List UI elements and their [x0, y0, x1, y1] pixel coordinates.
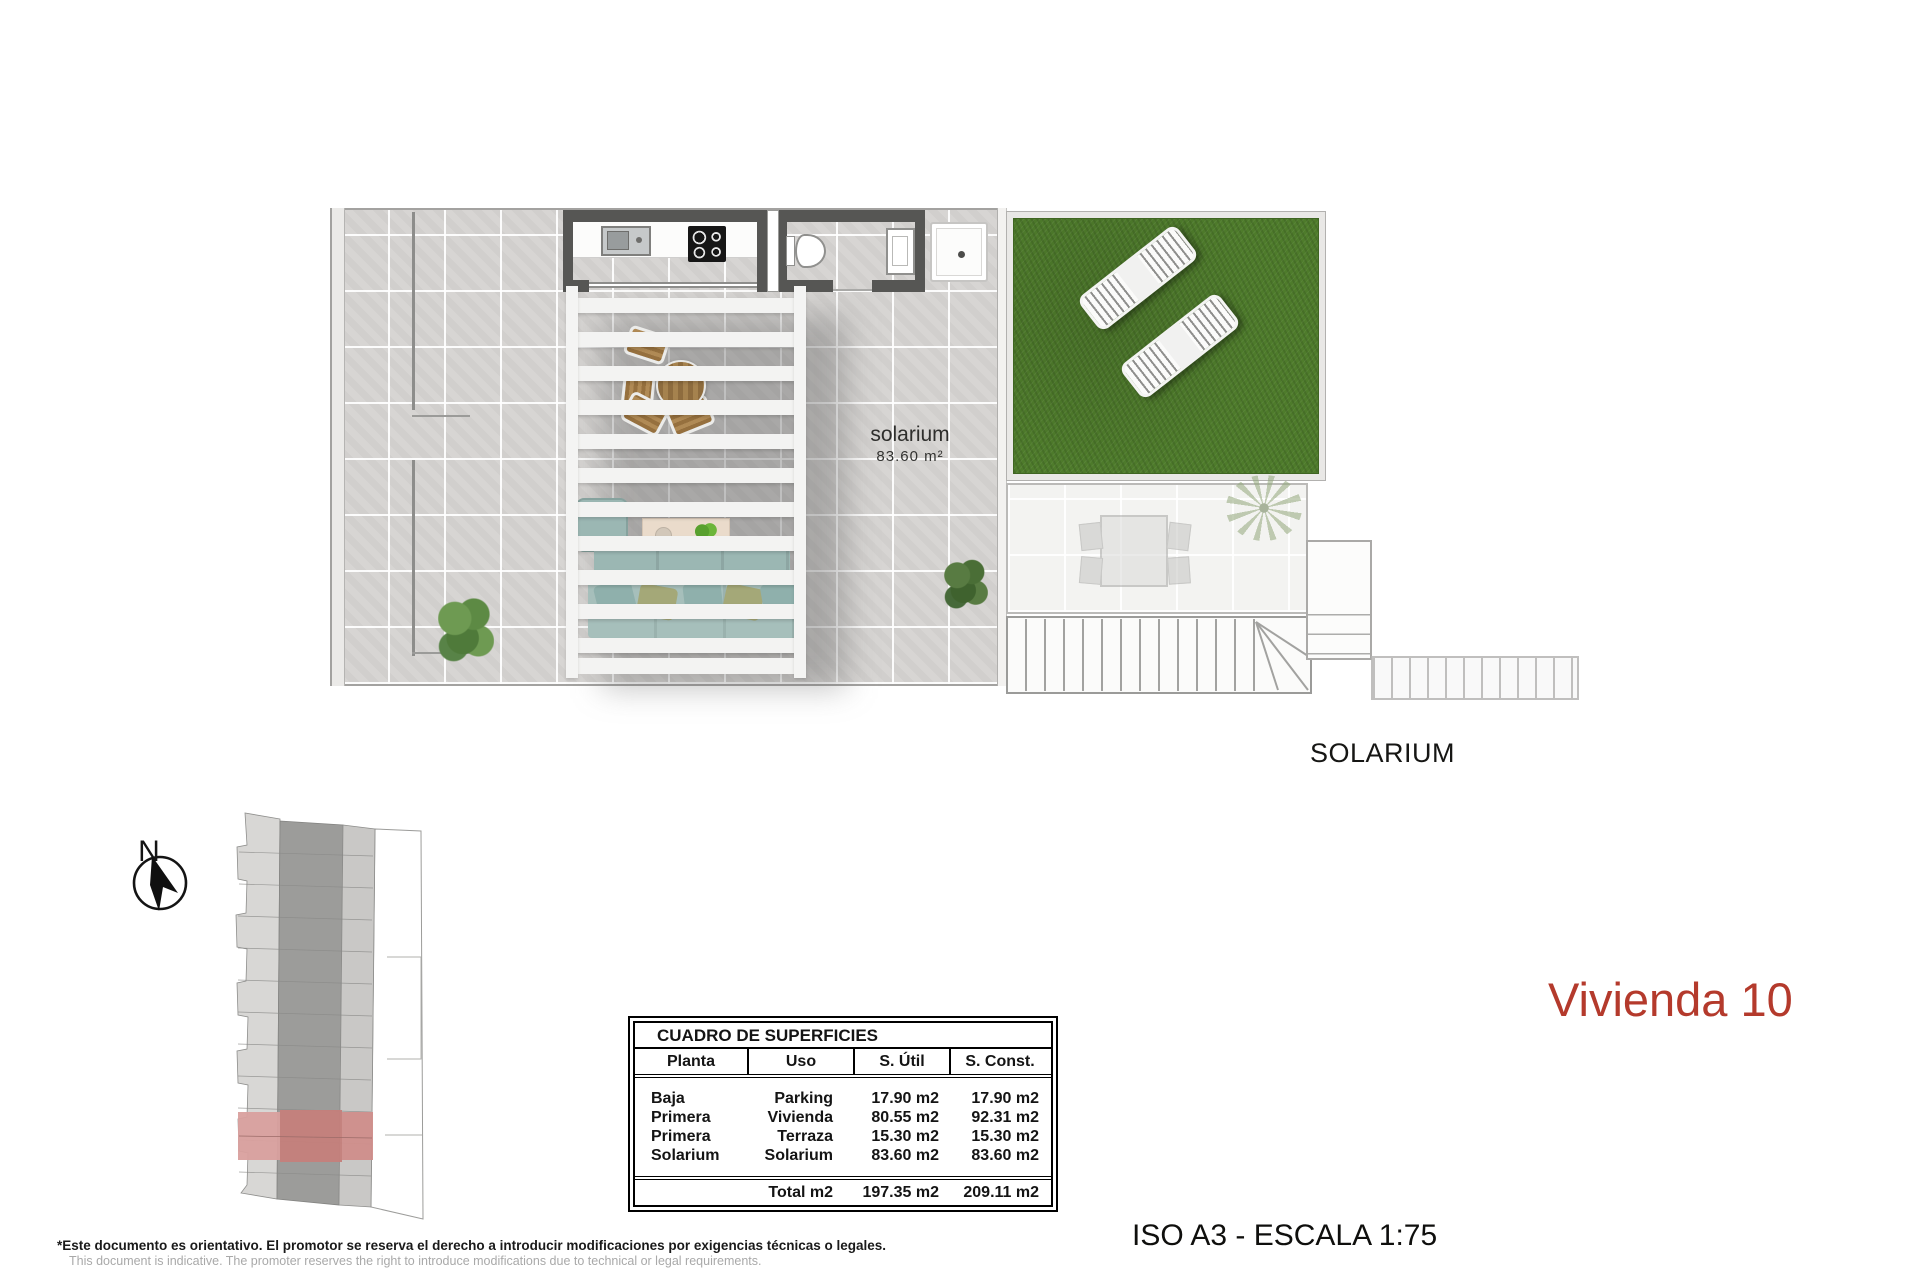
- lounger-fold: [1115, 254, 1160, 302]
- format-scale-label: ISO A3 - ESCALA 1:75: [1132, 1219, 1552, 1253]
- north-arrow-icon: N: [118, 825, 228, 940]
- cell-planta: Solarium: [635, 1146, 747, 1165]
- cell-planta: Primera: [635, 1127, 747, 1146]
- pergola-slat: [576, 502, 796, 517]
- table-row: Primera Vivienda 80.55 m2 92.31 m2: [635, 1108, 1051, 1127]
- kitchen-sink: [601, 226, 651, 256]
- cell-sconst: 92.31 m2: [949, 1108, 1049, 1127]
- table-header-row: Planta Uso S. Útil S. Const.: [635, 1049, 1051, 1078]
- sun-lounger-1: [1076, 223, 1200, 332]
- col-header-sconst: S. Const.: [949, 1049, 1049, 1074]
- palm-plant: [1226, 475, 1302, 541]
- potted-plant: [944, 558, 988, 612]
- col-header-planta: Planta: [635, 1049, 747, 1074]
- pergola-slat: [576, 604, 796, 619]
- cell-uso: Solarium: [747, 1146, 853, 1165]
- kitchen-right-wall: [757, 210, 767, 292]
- cell-uso: Parking: [747, 1089, 853, 1108]
- table-title: CUADRO DE SUPERFICIES: [635, 1023, 1051, 1049]
- dining-table: [1100, 515, 1168, 587]
- dining-chair: [1079, 556, 1103, 585]
- pergola-slat: [576, 332, 796, 347]
- site-plan-inset: [225, 805, 435, 1235]
- shower-tray: [930, 222, 988, 282]
- cell-sutil: 80.55 m2: [853, 1108, 949, 1127]
- partition-wall-upper: [412, 212, 415, 410]
- unit-title: Vivienda 10: [1548, 972, 1838, 1027]
- cell-planta: Baja: [635, 1089, 747, 1108]
- surfaces-table: CUADRO DE SUPERFICIES Planta Uso S. Útil…: [628, 1016, 1058, 1212]
- door-slot: [767, 210, 779, 292]
- washbasin: [886, 228, 915, 275]
- pergola-slat: [576, 536, 796, 551]
- landing-steps: [1308, 596, 1370, 658]
- pergola-frame-left: [566, 286, 578, 678]
- external-stair: [1371, 656, 1579, 700]
- cell-sutil: 15.30 m2: [853, 1127, 949, 1146]
- grass-curb: [1006, 211, 1326, 481]
- dining-chair: [1167, 556, 1191, 584]
- room-label: solarium 83.60 m²: [843, 423, 977, 465]
- cell-planta: Primera: [635, 1108, 747, 1127]
- total-util: 197.35 m2: [853, 1180, 949, 1205]
- washbasin-bowl: [892, 236, 908, 266]
- room-area: 83.60 m²: [843, 448, 977, 465]
- col-header-uso: Uso: [747, 1049, 853, 1074]
- room-name: solarium: [843, 423, 977, 447]
- dining-chair: [1166, 522, 1191, 551]
- dining-chair: [1079, 522, 1104, 551]
- pergola-slat: [576, 366, 796, 381]
- cell-sconst: 17.90 m2: [949, 1089, 1049, 1108]
- table-row: Primera Terraza 15.30 m2 15.30 m2: [635, 1127, 1051, 1146]
- stair-landing: [1306, 540, 1372, 660]
- left-boundary-strip: [330, 208, 345, 686]
- lounger-fold: [1157, 322, 1202, 370]
- pergola: [566, 286, 806, 678]
- disclaimer: *Este documento es orientativo. El promo…: [57, 1238, 897, 1268]
- cell-uso: Vivienda: [747, 1108, 853, 1127]
- pergola-slat: [576, 298, 796, 313]
- staircase: [1006, 616, 1312, 694]
- compass: N: [118, 825, 228, 940]
- pergola-slat: [576, 468, 796, 483]
- surfaces-table-inner: CUADRO DE SUPERFICIES Planta Uso S. Útil…: [633, 1021, 1053, 1207]
- shower-drain: [958, 251, 965, 258]
- pergola-bottom-frame: [566, 658, 806, 674]
- potted-plant: [438, 596, 494, 666]
- cell-sutil: 17.90 m2: [853, 1089, 949, 1108]
- disclaimer-english: This document is indicative. The promote…: [57, 1254, 897, 1268]
- pergola-slat: [576, 570, 796, 585]
- pergola-frame-right: [794, 286, 806, 678]
- highlighted-unit: [238, 1110, 373, 1162]
- wc-door-line: [833, 289, 872, 291]
- sink-basin: [607, 231, 629, 250]
- stair-treads: [1008, 618, 1310, 692]
- artificial-grass: [1013, 218, 1319, 474]
- col-header-sutil: S. Útil: [853, 1049, 949, 1074]
- cell-sutil: 83.60 m2: [853, 1146, 949, 1165]
- table-body: Baja Parking 17.90 m2 17.90 m2 Primera V…: [635, 1078, 1051, 1176]
- lower-terrace: [1006, 483, 1308, 614]
- pergola-slat: [576, 638, 796, 653]
- site-plan-drawing: [225, 805, 435, 1235]
- cell-sconst: 15.30 m2: [949, 1127, 1049, 1146]
- table-row: Solarium Solarium 83.60 m2 83.60 m2: [635, 1146, 1051, 1165]
- total-label: Total m2: [747, 1180, 853, 1205]
- toilet-tank: [786, 236, 795, 266]
- cooktop-hob: [688, 226, 726, 262]
- table-total-row: Total m2 197.35 m2 209.11 m2: [635, 1176, 1051, 1205]
- floor-title: SOLARIUM: [1310, 738, 1470, 769]
- sun-lounger-2: [1118, 291, 1242, 400]
- cell-uso: Terraza: [747, 1127, 853, 1146]
- pergola-slat: [576, 400, 796, 415]
- cell-sconst: 83.60 m2: [949, 1146, 1049, 1165]
- rooms-top-wall: [563, 210, 925, 222]
- pergola-slat: [576, 434, 796, 449]
- partition-shelf-line: [412, 415, 470, 417]
- floorplan-page: solarium 83.60 m² SOLARIUM Vivienda 10 I…: [0, 0, 1920, 1280]
- disclaimer-spanish: *Este documento es orientativo. El promo…: [57, 1238, 897, 1253]
- total-const: 209.11 m2: [949, 1180, 1049, 1205]
- table-row: Baja Parking 17.90 m2 17.90 m2: [635, 1089, 1051, 1108]
- total-spacer: [635, 1180, 747, 1205]
- partition-wall-lower: [412, 460, 415, 656]
- sink-faucet: [636, 237, 642, 243]
- wc-bottom-wall-right: [872, 280, 925, 292]
